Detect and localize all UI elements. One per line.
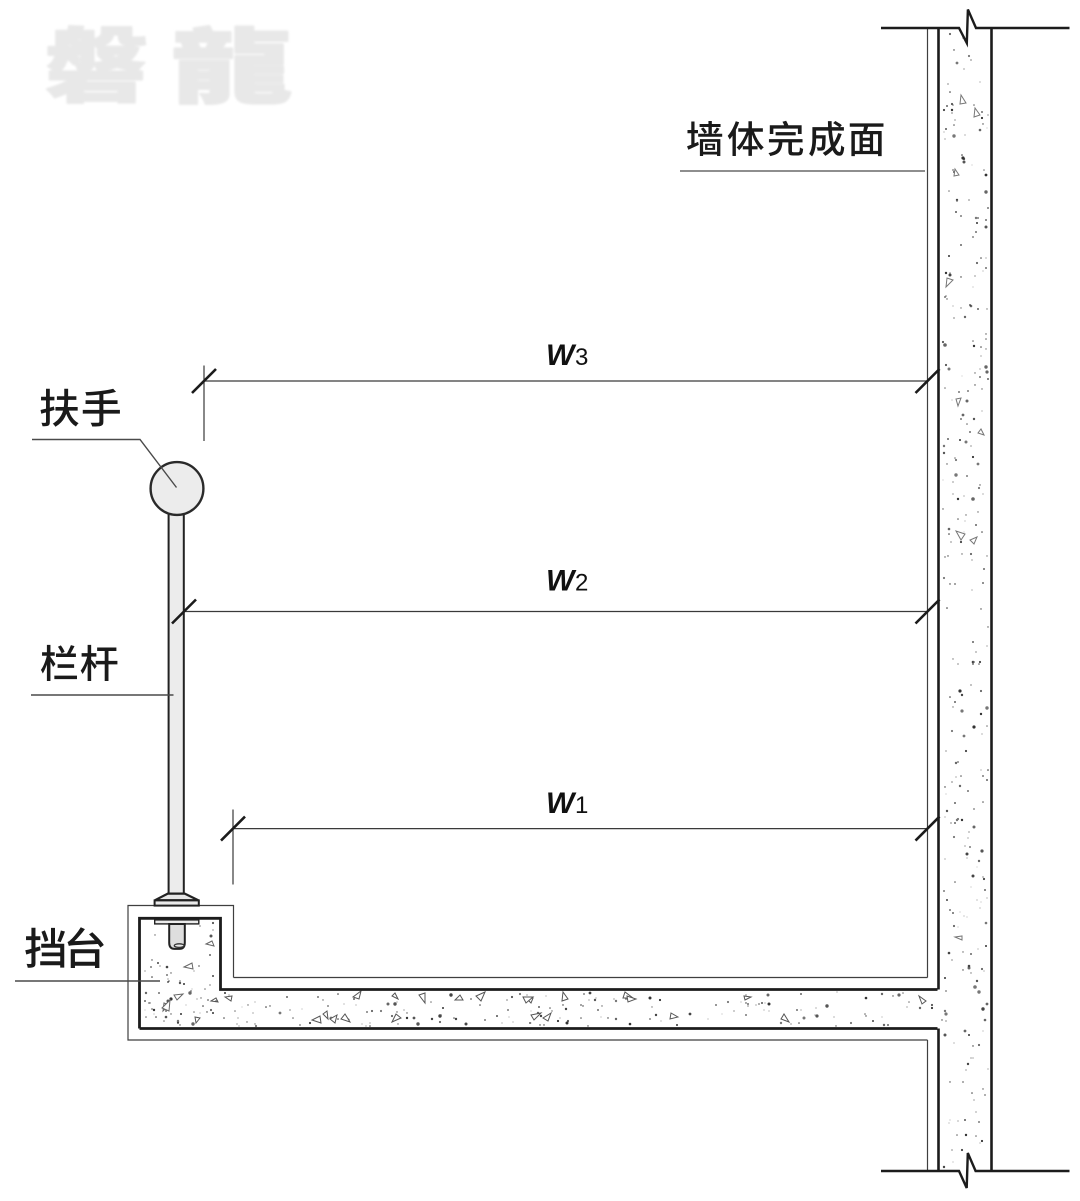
svg-text:W: W (546, 787, 577, 820)
svg-text:W: W (546, 339, 577, 372)
svg-text:W: W (546, 565, 577, 598)
svg-text:1: 1 (575, 792, 588, 819)
svg-text:3: 3 (575, 344, 588, 371)
svg-text:2: 2 (575, 570, 588, 597)
